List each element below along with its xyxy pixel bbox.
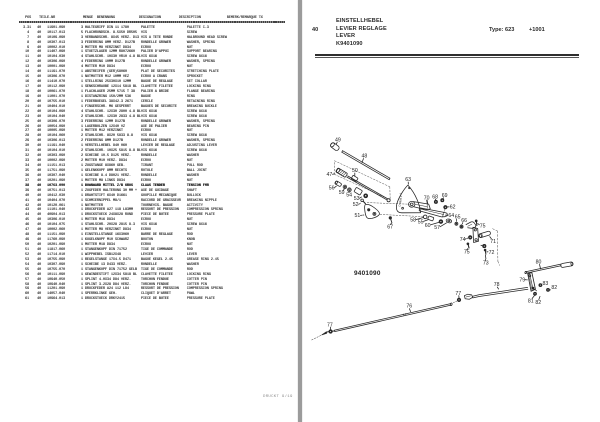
svg-text:74: 74: [460, 237, 466, 243]
svg-text:81: 81: [528, 299, 534, 305]
svg-text:72: 72: [489, 250, 495, 256]
svg-text:51: 51: [355, 213, 361, 219]
svg-text:53: 53: [354, 196, 360, 202]
svg-text:65: 65: [455, 215, 461, 221]
svg-text:52: 52: [353, 202, 359, 208]
svg-text:54: 54: [346, 193, 352, 199]
svg-text:D 4905 F: D 4905 F: [397, 195, 403, 207]
svg-text:75: 75: [464, 250, 470, 256]
svg-text:73: 73: [483, 261, 489, 267]
svg-text:55: 55: [418, 219, 424, 225]
svg-text:66: 66: [461, 218, 467, 224]
svg-text:78: 78: [494, 282, 500, 288]
svg-text:48: 48: [362, 154, 368, 160]
svg-text:77: 77: [327, 322, 333, 328]
svg-text:77: 77: [455, 291, 461, 297]
svg-text:59: 59: [339, 190, 345, 196]
svg-text:60: 60: [425, 223, 431, 229]
svg-text:56: 56: [329, 186, 335, 192]
svg-text:47: 47: [327, 172, 333, 178]
svg-text:57: 57: [434, 225, 440, 231]
svg-text:58: 58: [410, 218, 416, 224]
svg-text:70: 70: [424, 196, 430, 202]
svg-text:49: 49: [335, 138, 341, 144]
svg-text:68: 68: [432, 195, 438, 201]
svg-text:82: 82: [535, 300, 541, 306]
svg-text:83: 83: [543, 281, 549, 287]
svg-text:82: 82: [551, 285, 557, 291]
svg-text:75: 75: [480, 223, 486, 229]
svg-text:64: 64: [448, 213, 454, 219]
svg-text:80: 80: [536, 259, 542, 265]
svg-text:62: 62: [450, 205, 456, 211]
svg-text:67: 67: [387, 224, 393, 230]
svg-text:71: 71: [490, 239, 496, 245]
svg-text:79: 79: [519, 277, 525, 283]
